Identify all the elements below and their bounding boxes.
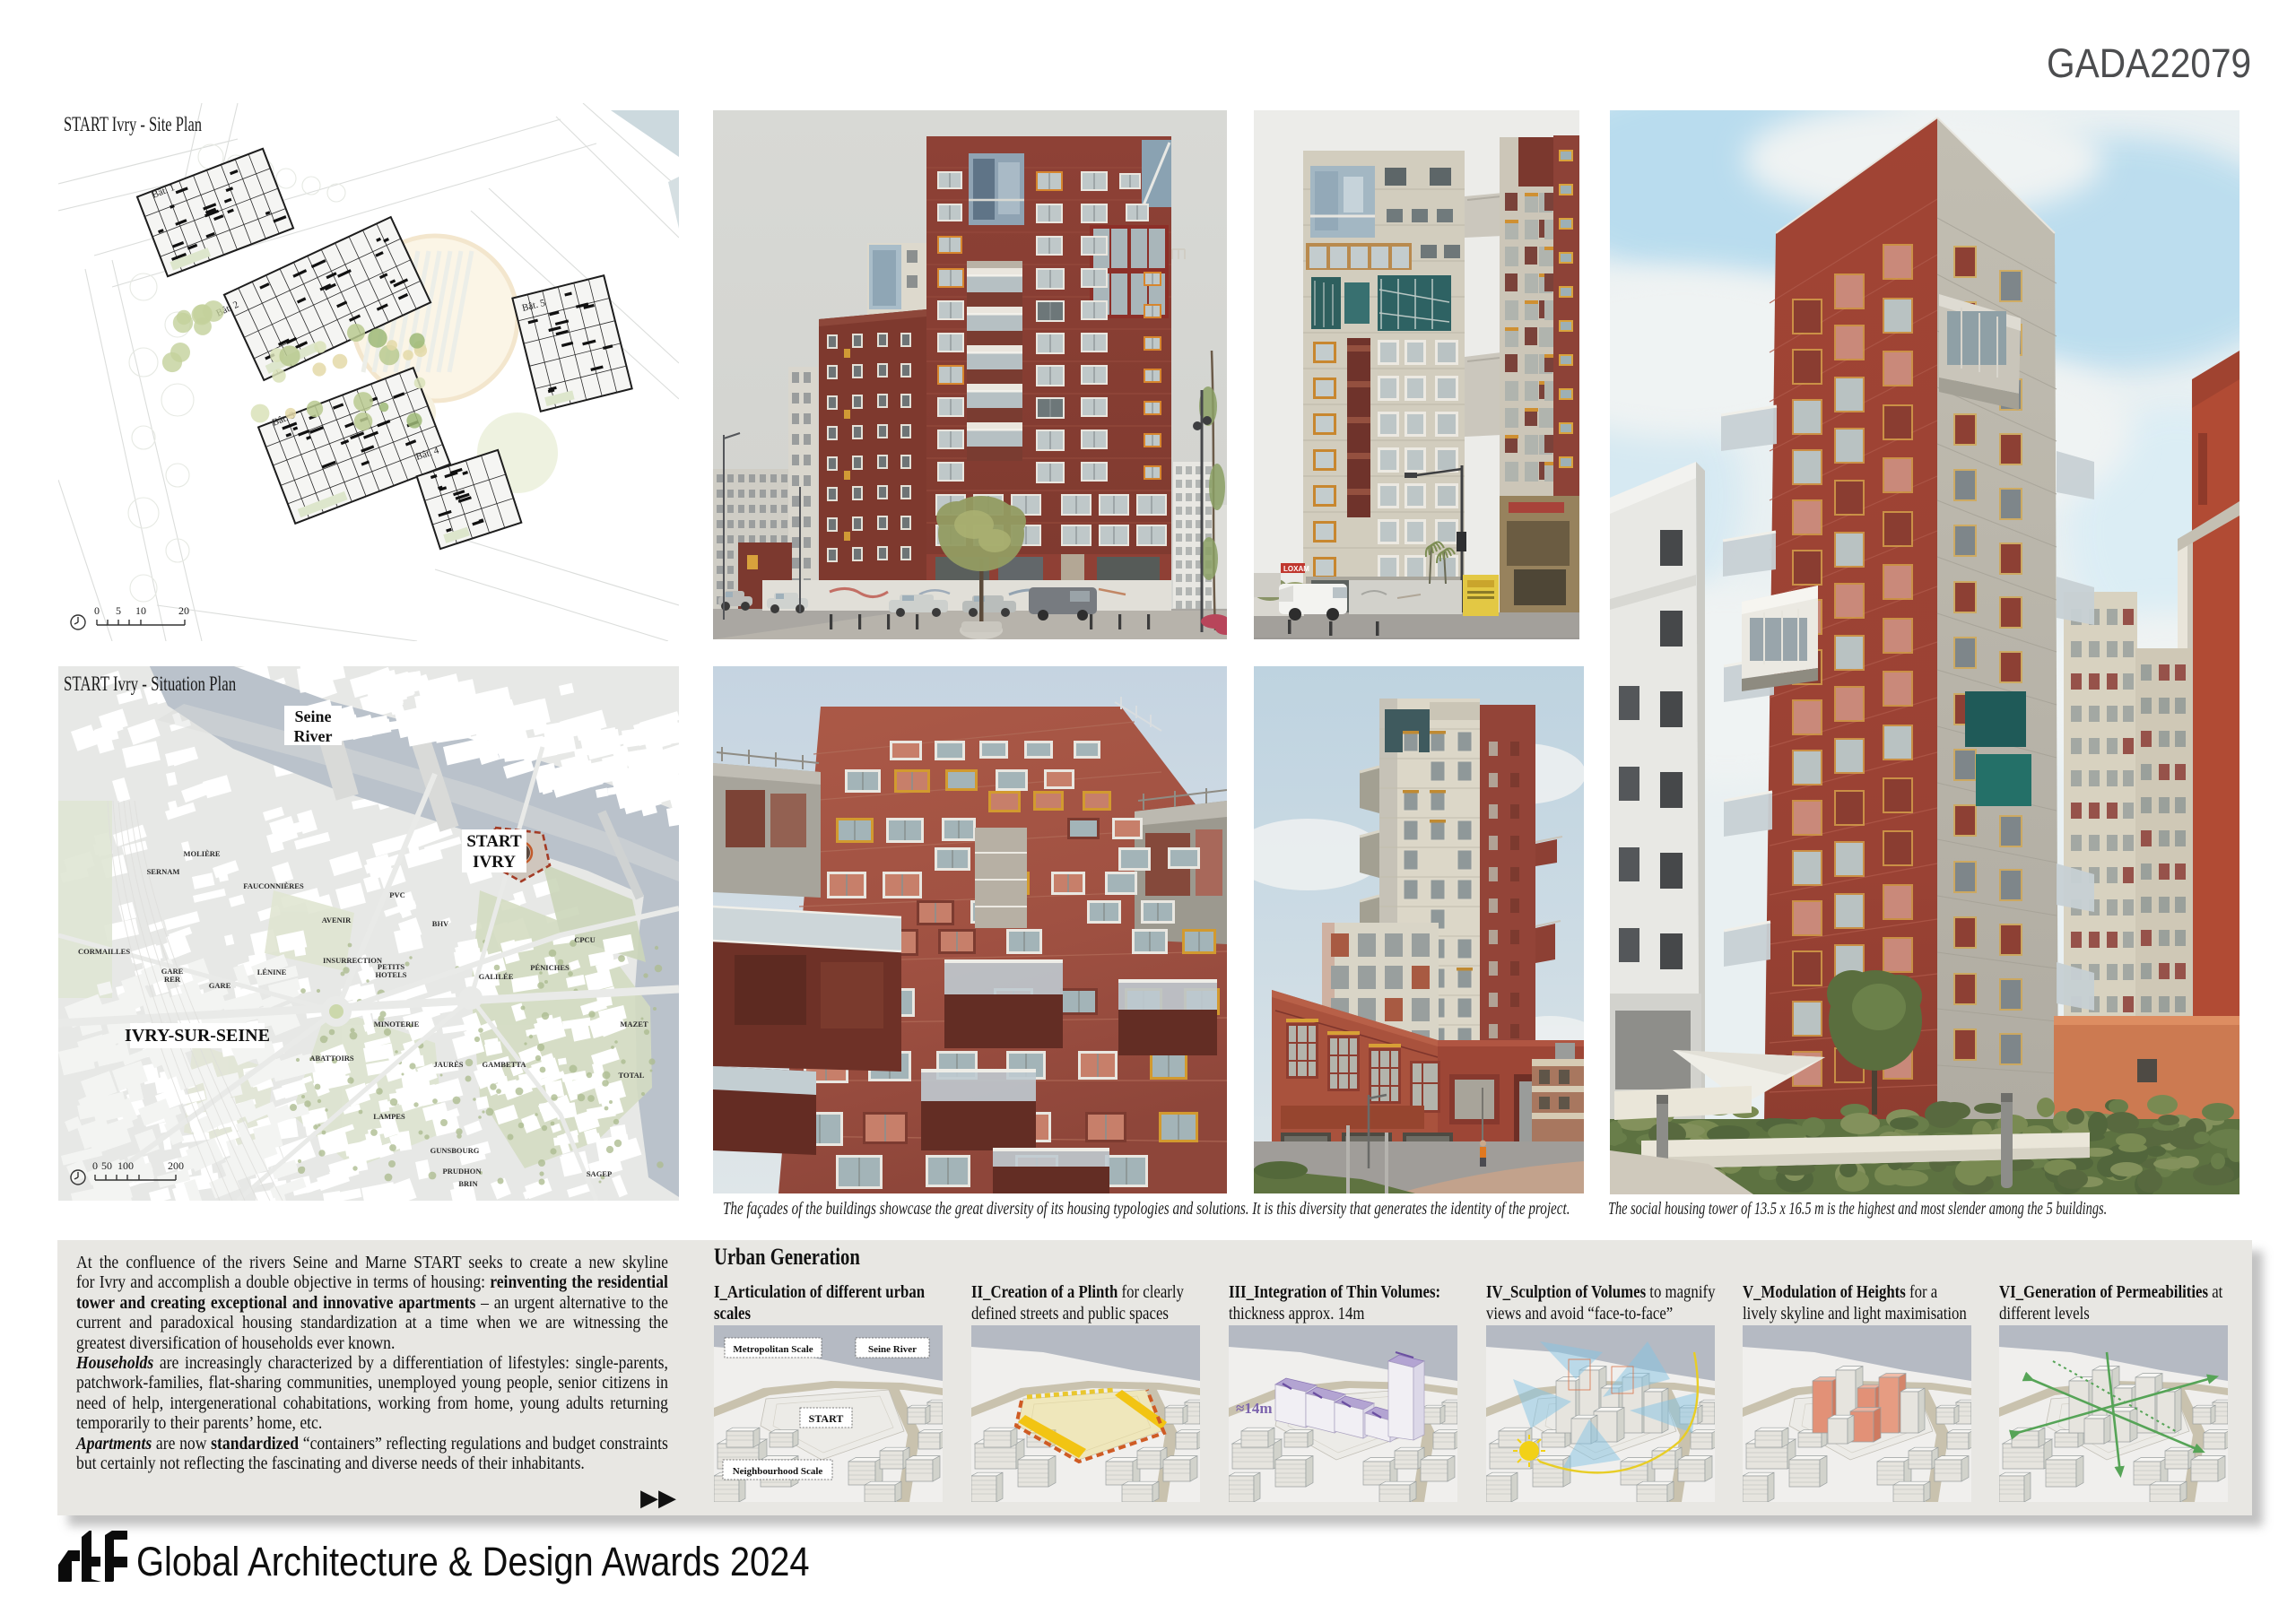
svg-text:GALILÉE: GALILÉE <box>479 972 514 981</box>
svg-text:BHV: BHV <box>432 919 449 928</box>
svg-text:MOLIÈRE: MOLIÈRE <box>183 849 220 858</box>
svg-text:Seine: Seine <box>294 707 331 725</box>
svg-text:PRUDHON: PRUDHON <box>443 1167 483 1176</box>
svg-text:≈14m: ≈14m <box>1236 1400 1273 1417</box>
svg-text:RER: RER <box>164 975 181 984</box>
svg-text:START: START <box>466 832 522 851</box>
svg-text:10: 10 <box>135 604 146 617</box>
svg-text:FAUCONNIÈRES: FAUCONNIÈRES <box>243 881 304 890</box>
svg-text:MAZET: MAZET <box>620 1020 648 1028</box>
svg-text:PÉNICHES: PÉNICHES <box>530 963 570 972</box>
svg-text:SERNAM: SERNAM <box>147 867 180 876</box>
svg-text:JAURÈS: JAURÈS <box>433 1060 463 1069</box>
svg-text:100: 100 <box>117 1159 134 1172</box>
svg-text:LAMPES: LAMPES <box>373 1112 405 1121</box>
svg-text:BRIN: BRIN <box>458 1179 478 1188</box>
svg-text:GUNSBOURG: GUNSBOURG <box>430 1146 480 1155</box>
svg-text:TOTAL: TOTAL <box>619 1071 645 1080</box>
svg-text:CORMAILLES: CORMAILLES <box>78 947 130 956</box>
svg-text:GAMBETTA: GAMBETTA <box>483 1060 527 1069</box>
svg-text:LOXAM: LOXAM <box>1283 565 1309 573</box>
svg-text:200: 200 <box>168 1159 184 1172</box>
svg-text:HOTELS: HOTELS <box>376 970 407 979</box>
svg-text:SAGEP: SAGEP <box>587 1169 612 1178</box>
svg-text:CPCU: CPCU <box>574 935 596 944</box>
svg-text:50: 50 <box>101 1159 112 1172</box>
svg-text:PVC: PVC <box>389 890 404 899</box>
svg-text:0: 0 <box>94 604 100 617</box>
svg-text:LÉNINE: LÉNINE <box>257 968 287 976</box>
svg-text:Seine River: Seine River <box>868 1344 917 1355</box>
svg-text:IVRY: IVRY <box>473 853 516 872</box>
svg-text:IVRY-SUR-SEINE: IVRY-SUR-SEINE <box>125 1026 270 1046</box>
svg-text:INSURRECTION: INSURRECTION <box>323 956 383 965</box>
svg-text:GARE: GARE <box>209 981 231 990</box>
svg-text:Metropolitan Scale: Metropolitan Scale <box>733 1344 813 1355</box>
svg-text:START: START <box>809 1412 844 1425</box>
svg-text:MINOTERIE: MINOTERIE <box>374 1020 420 1028</box>
svg-text:River: River <box>294 727 333 745</box>
svg-text:AVENIR: AVENIR <box>322 916 352 924</box>
svg-text:5: 5 <box>116 604 121 617</box>
svg-text:20: 20 <box>178 604 189 617</box>
svg-text:Neighbourhood Scale: Neighbourhood Scale <box>733 1466 823 1477</box>
svg-text:0: 0 <box>92 1159 98 1172</box>
svg-text:ABATTOIRS: ABATTOIRS <box>309 1054 354 1063</box>
